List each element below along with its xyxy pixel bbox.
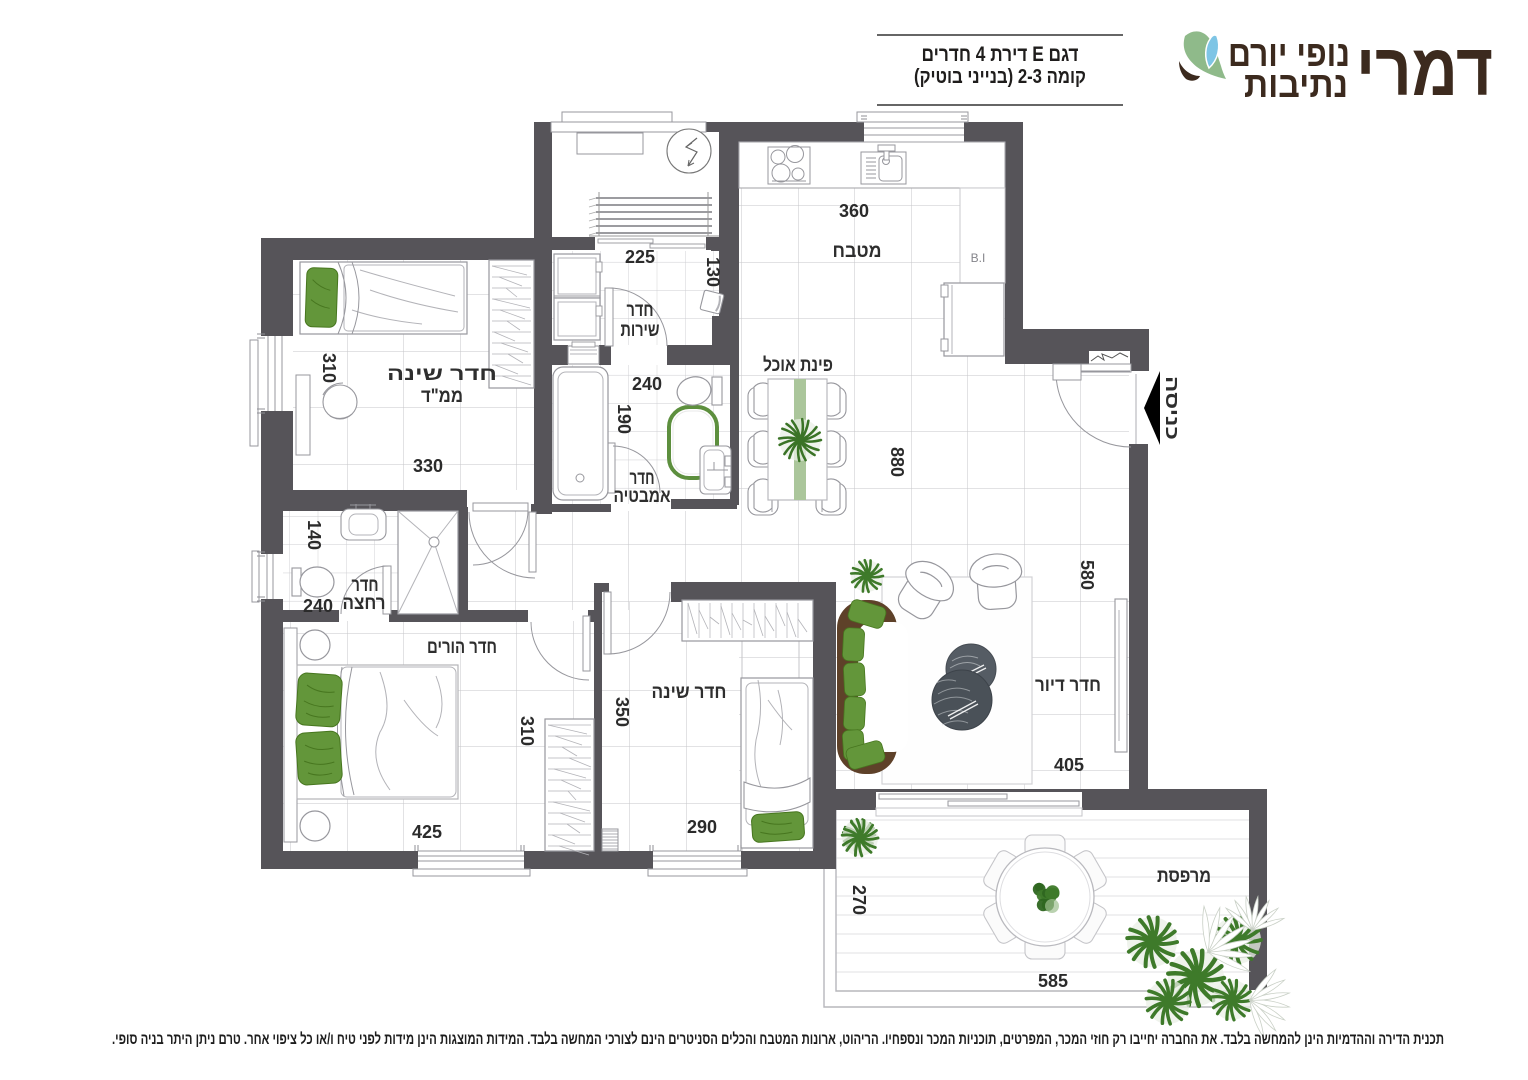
svg-text:290: 290 [687,817,717,837]
svg-text:585: 585 [1038,971,1068,991]
svg-text:חדר שינה: חדר שינה [652,682,727,703]
svg-text:310: 310 [319,353,339,383]
svg-text:שירות: שירות [621,320,660,341]
svg-text:דגם E דירת 4 חדרים: דגם E דירת 4 חדרים [921,43,1078,66]
svg-text:חדר דיור: חדר דיור [1035,675,1101,696]
svg-text:405: 405 [1054,755,1084,775]
svg-text:חדר: חדר [627,300,654,321]
svg-text:270: 270 [849,885,869,915]
svg-text:רחצה: רחצה [343,593,386,614]
svg-text:ממ"ד: ממ"ד [421,386,463,407]
svg-text:330: 330 [413,456,443,476]
svg-text:350: 350 [612,697,632,727]
svg-text:880: 880 [887,447,907,477]
svg-text:כניסה: כניסה [1162,376,1182,440]
svg-text:מטבח: מטבח [833,241,882,262]
svg-text:פינת אוכל: פינת אוכל [763,355,833,376]
svg-text:מרפסת: מרפסת [1157,866,1211,887]
svg-text:310: 310 [517,716,537,746]
svg-text:130: 130 [703,257,723,287]
svg-text:תכנית הדירה וההדמיות הינן להמח: תכנית הדירה וההדמיות הינן להמחשה בלבד. א… [112,1031,1444,1048]
svg-text:קומה 2-3 (בנייני בוטיק): קומה 2-3 (בנייני בוטיק) [914,66,1086,88]
svg-text:360: 360 [839,201,869,221]
svg-text:B.I: B.I [971,251,986,265]
svg-text:190: 190 [614,404,634,434]
svg-text:חדר שינה: חדר שינה [387,364,497,385]
svg-text:דמרי: דמרי [1356,28,1493,111]
svg-text:240: 240 [632,374,662,394]
svg-text:140: 140 [304,520,324,550]
svg-text:240: 240 [303,596,333,616]
svg-text:אמבטיה: אמבטיה [614,486,671,507]
svg-text:חדר הורים: חדר הורים [427,637,497,658]
svg-text:נתיבות: נתיבות [1244,64,1348,105]
svg-text:425: 425 [412,822,442,842]
svg-text:580: 580 [1077,560,1097,590]
svg-text:225: 225 [625,247,655,267]
